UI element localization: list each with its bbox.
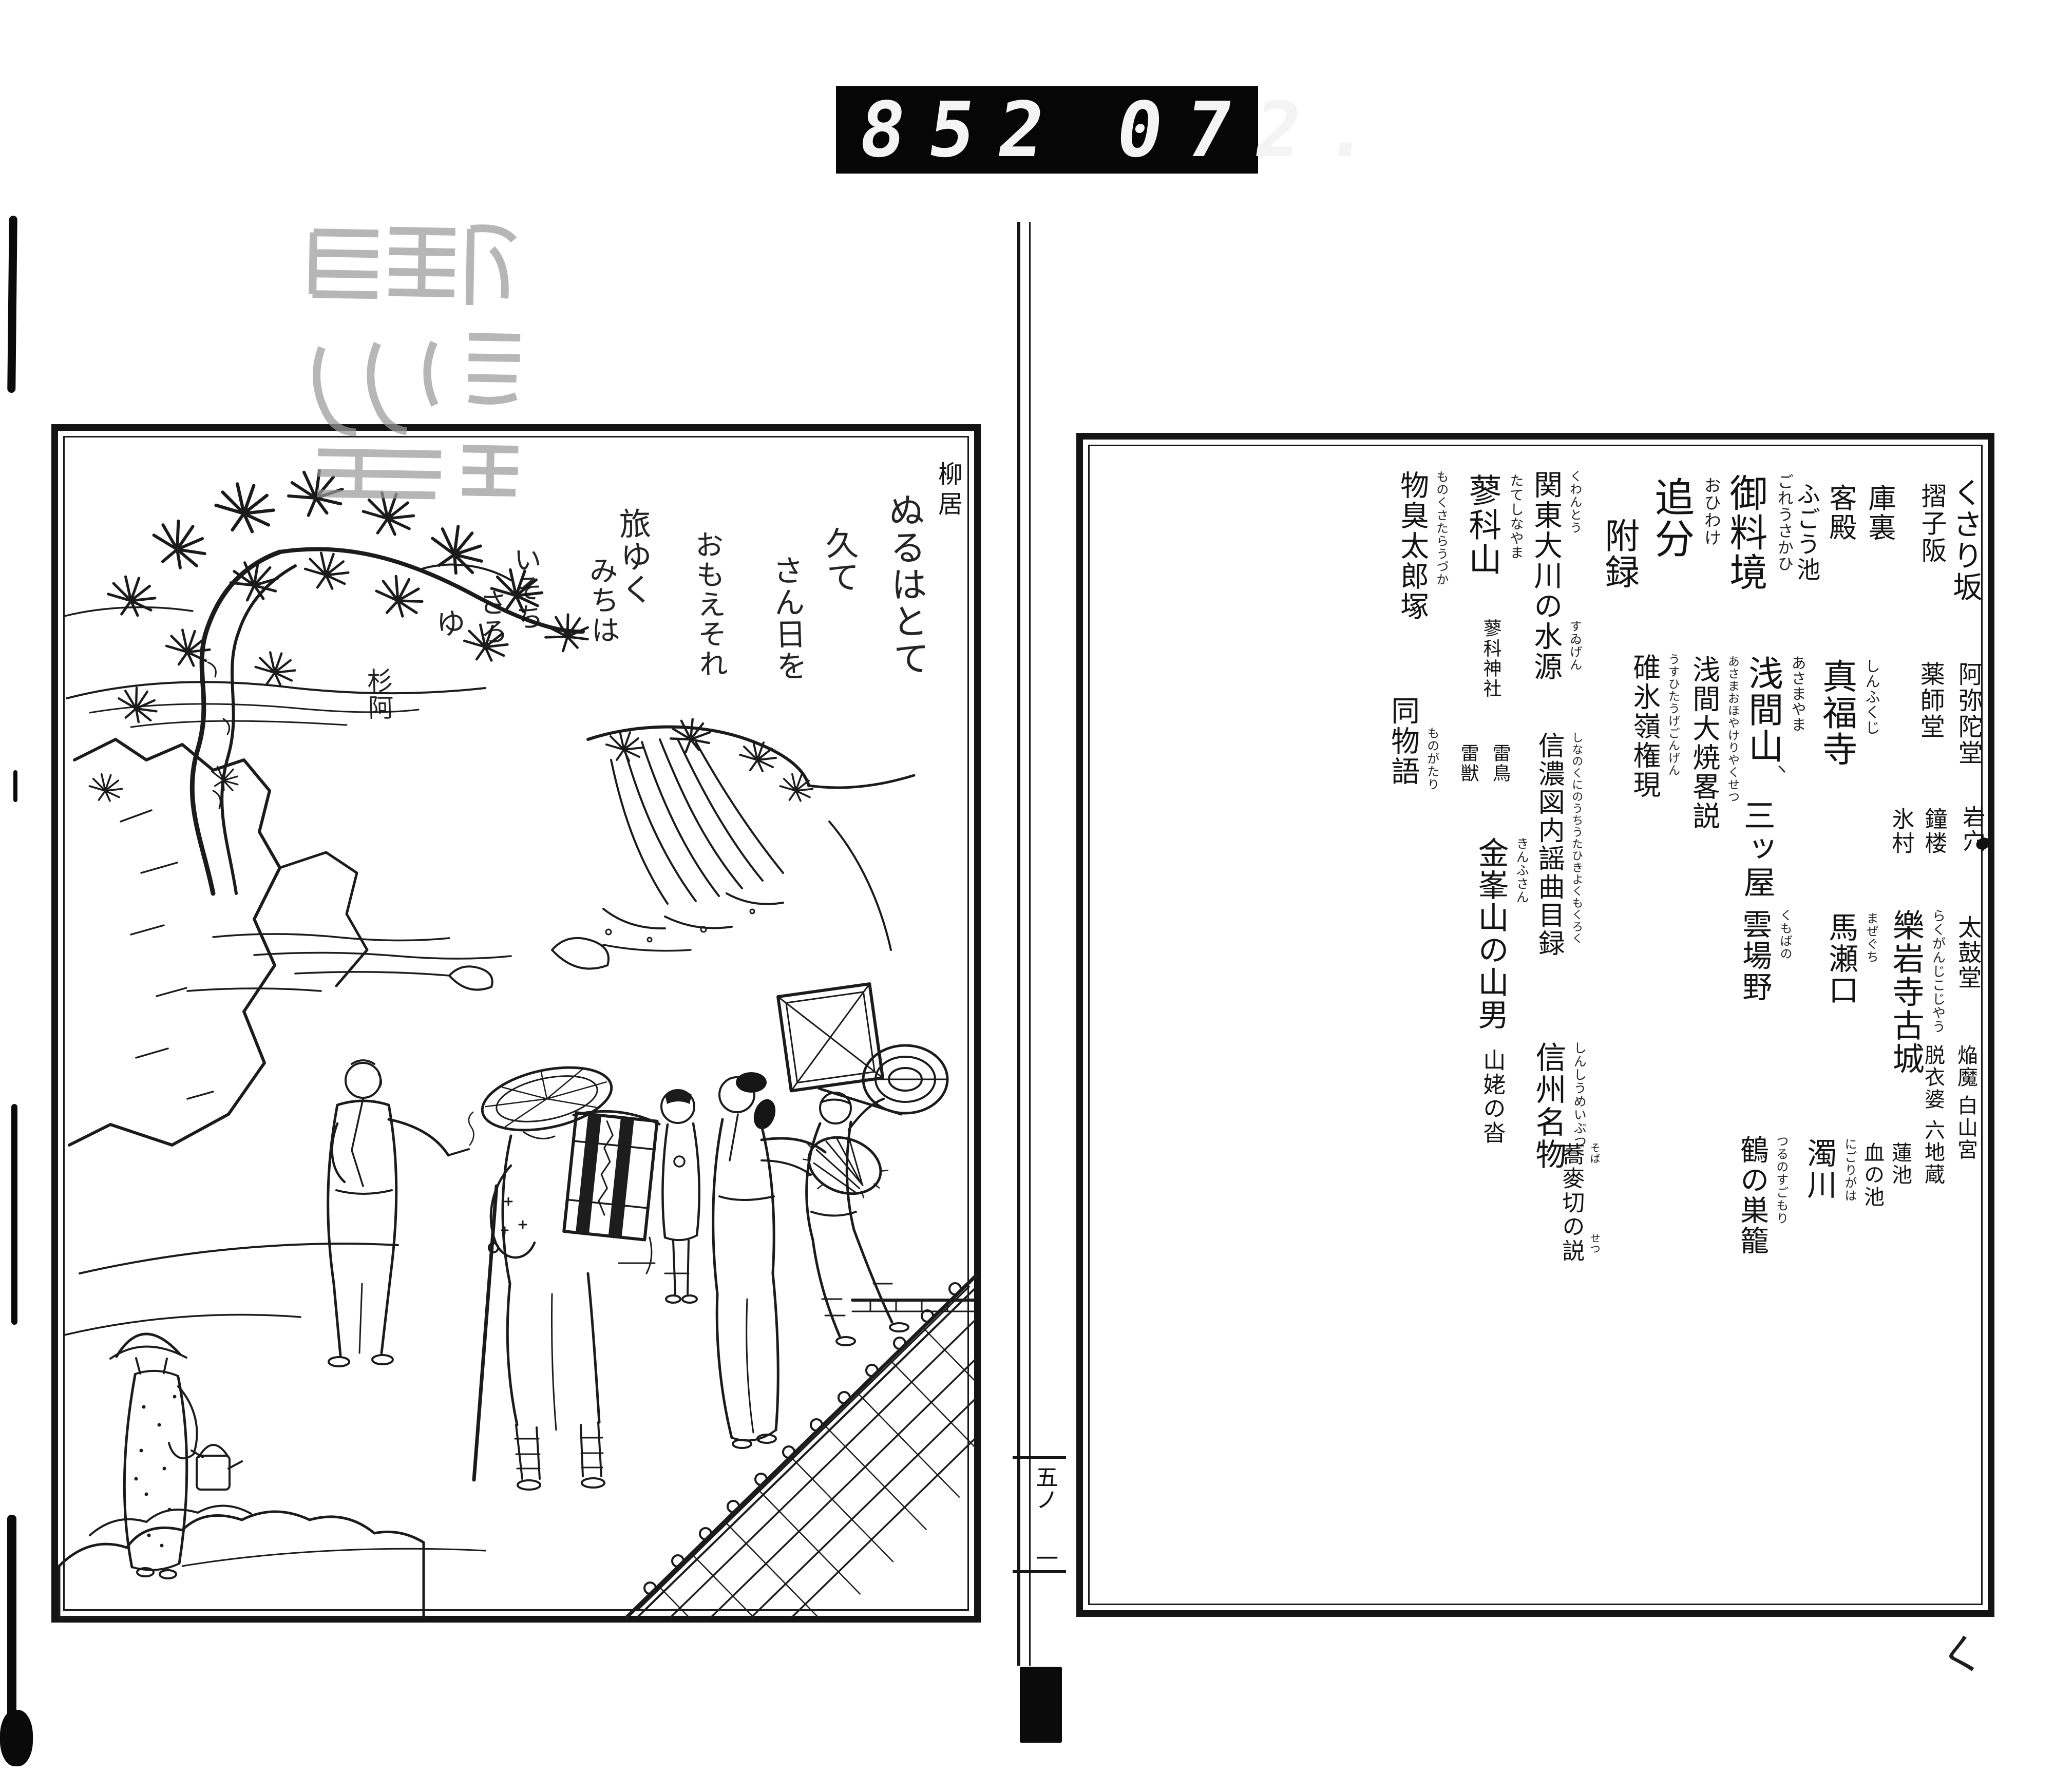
- furigana: あさまおほやけりやくせつ: [1726, 655, 1738, 803]
- toc-entry: 金峯山の山男: [1475, 837, 1506, 1031]
- toc-entry: 三ッ屋: [1741, 799, 1773, 899]
- toc-entry: 摺子阪: [1919, 483, 1945, 564]
- toc-entry: 太鼓堂: [1956, 915, 1980, 990]
- furigana: しんしうめいぶつ: [1573, 1041, 1586, 1148]
- gutter-tick: [1013, 1570, 1066, 1573]
- gutter-black-tab: [1020, 1667, 1062, 1743]
- gutter-page-label: 五ノ: [1033, 1465, 1056, 1511]
- tiled-roof: [538, 1184, 1069, 1712]
- furigana: せつ: [1589, 1233, 1600, 1254]
- toc-entry: 関東大川の水源: [1531, 470, 1560, 682]
- furigana: しなのくにのうちうたひきよくもくろく: [1570, 732, 1582, 944]
- pilgrim-figure: [474, 1057, 660, 1490]
- toc-entry: 血の池: [1862, 1142, 1882, 1208]
- gutter-fold-line: [1029, 222, 1031, 1666]
- toc-entry: 庫裏: [1866, 484, 1893, 542]
- toc-entry: 阿弥陀堂: [1956, 661, 1981, 766]
- furigana: しんふくじ: [1864, 658, 1879, 735]
- furigana: たてしなやま: [1509, 473, 1523, 560]
- toc-entry: 同物語: [1389, 696, 1417, 787]
- furigana: くわんとう: [1569, 470, 1581, 534]
- furigana: ごれうさかひ: [1776, 473, 1792, 572]
- toc-entry: 焔魔: [1955, 1044, 1976, 1089]
- toc-entry: 雷獣: [1459, 744, 1477, 784]
- toc-entry: 蓮池: [1890, 1142, 1910, 1186]
- furigana: ものがたり: [1426, 727, 1438, 791]
- toc-entry: 碓氷嶺権現: [1630, 653, 1658, 799]
- furigana: くもばの: [1779, 909, 1791, 960]
- page-corner-blot: [0, 1710, 33, 1766]
- toc-entry: くさり坂: [1950, 478, 1980, 603]
- standing-man-figure: [328, 1060, 474, 1366]
- poem-column: おもえそれ: [692, 530, 726, 679]
- cloud-band: [59, 1505, 424, 1617]
- corner-brush-mark: く: [1934, 1618, 1988, 1686]
- poem-column: みちは: [586, 556, 618, 645]
- toc-entry: 雷鳥: [1491, 744, 1509, 784]
- furigana: にごりがは: [1843, 1138, 1856, 1202]
- toc-entry: 客殿: [1827, 484, 1854, 542]
- gutter-fold-line: [1017, 222, 1020, 1666]
- toc-entry: 蓼科山: [1466, 473, 1498, 577]
- furigana: らくがんじこじやう: [1931, 909, 1944, 1034]
- poem-column: さろ: [476, 588, 506, 646]
- toc-entry: 物臭太郎塚: [1398, 470, 1427, 622]
- poem-label: 柳居: [936, 461, 960, 521]
- toc-entry: 馬瀬口: [1826, 912, 1856, 1006]
- toc-entry: 真福寺: [1819, 658, 1854, 768]
- toc-entry: 追分: [1651, 476, 1691, 560]
- page-edge-smudge: [13, 770, 17, 802]
- page-edge-smudge: [11, 1104, 17, 1325]
- poem-column: 久て: [822, 526, 858, 594]
- rock-cliff: [69, 739, 367, 1145]
- gutter-page-label: 一: [1033, 1547, 1056, 1569]
- counter-right-digits: 072.: [1112, 92, 1400, 168]
- toc-entry: 雲場野: [1740, 909, 1770, 1003]
- pine-tree: [108, 465, 593, 893]
- toc-entry: 脱衣婆: [1923, 1044, 1943, 1111]
- toc-entry: 浅間大焼畧説: [1690, 655, 1718, 831]
- toc-entry: 信濃図内謡曲目録: [1535, 732, 1562, 958]
- toc-entry: 附録: [1601, 518, 1636, 590]
- page-edge-smudge: [7, 216, 17, 393]
- toc-entry: 濁川: [1804, 1138, 1834, 1200]
- furigana: あさまやま: [1790, 655, 1805, 732]
- road-ground: [64, 1244, 689, 1566]
- furigana: ものくさたらうづか: [1435, 470, 1448, 586]
- poem-signature: 杉阿: [365, 668, 392, 721]
- furigana: うすひたうげごんげん: [1666, 653, 1678, 776]
- poem-column: いそち: [510, 545, 541, 632]
- toc-entry: 樂岩寺古城: [1890, 909, 1922, 1076]
- library-seal: [299, 217, 525, 525]
- toc-entry: ふごう池: [1795, 482, 1819, 582]
- toc-entry: 白山宮: [1955, 1095, 1976, 1161]
- toc-entry: 御料境: [1726, 473, 1764, 592]
- furigana: まぜぐち: [1865, 912, 1877, 963]
- gutter-tick: [1013, 1456, 1066, 1459]
- furigana: そば: [1589, 1142, 1600, 1164]
- waterfall: [588, 715, 914, 950]
- toc-entry: 薬師堂: [1918, 661, 1943, 740]
- furigana: つるのすごもり: [1775, 1135, 1787, 1225]
- furigana: きんふさん: [1515, 837, 1528, 904]
- frame-counter-bar: 852 072.: [836, 86, 1258, 174]
- scanned-book-spread: 852 072.: [0, 0, 2054, 1792]
- furigana: おひわけ: [1703, 476, 1720, 546]
- toc-entry: 氷村: [1889, 807, 1912, 855]
- toc-entry: 蕎麥切の説: [1559, 1142, 1582, 1263]
- toc-entry: ヽ: [1772, 761, 1787, 778]
- toc-entry: 六地蔵: [1923, 1119, 1943, 1186]
- furigana: すゐげん: [1569, 620, 1581, 671]
- porter-figure: [778, 984, 947, 1345]
- toc-entry: 山姥の沓: [1480, 1048, 1503, 1145]
- poem-column: 旅ゆく: [615, 507, 651, 606]
- mist-band: [64, 607, 485, 727]
- toc-entry: 鐘楼: [1922, 807, 1945, 855]
- poem-column: ぬるはとて: [885, 492, 927, 677]
- poem-column: さん日を: [770, 555, 805, 682]
- toc-entry: 浅間山: [1745, 655, 1780, 765]
- toc-entry: 鶴の巣籠: [1738, 1135, 1766, 1256]
- counter-left-digits: 852: [854, 92, 1073, 168]
- poem-column: ゆ: [433, 608, 464, 639]
- toc-entry: 蓼科神社: [1481, 619, 1500, 699]
